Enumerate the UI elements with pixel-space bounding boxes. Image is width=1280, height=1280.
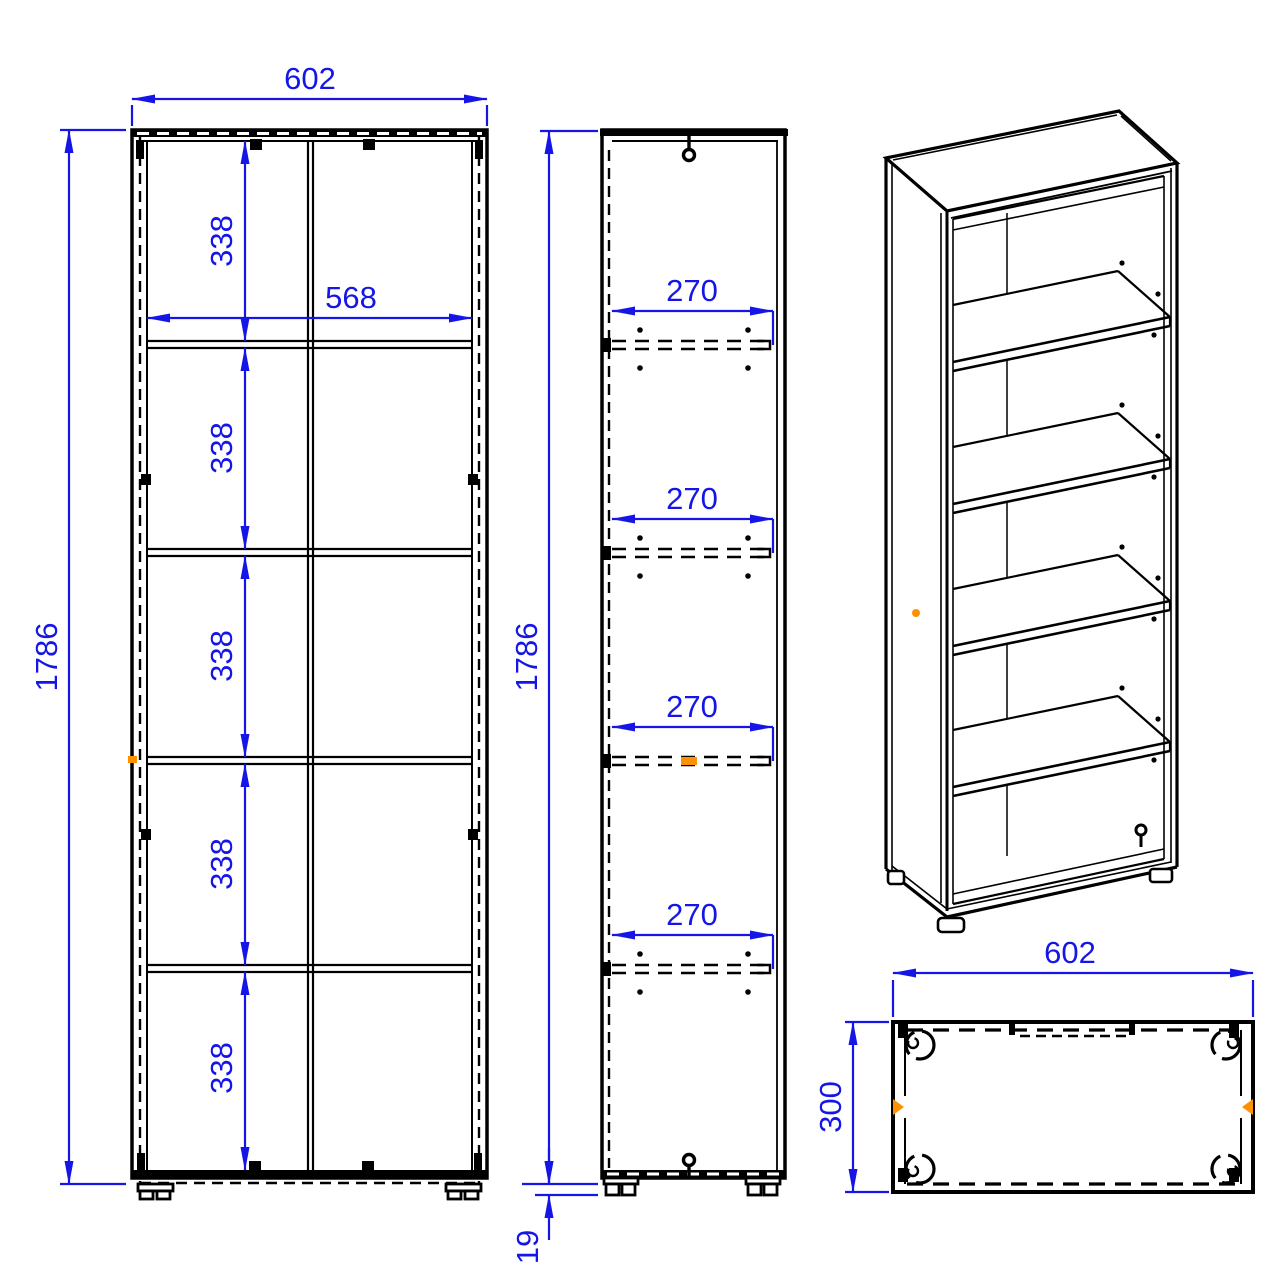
dim-front-spacing-4: 338	[204, 838, 239, 890]
iso-shelf-4	[953, 685, 1170, 796]
side-shelf-1	[603, 327, 770, 371]
side-shelf-3-fixed	[603, 754, 770, 768]
dim-top-width: 602	[1044, 935, 1096, 970]
top-cam-marker-right	[1242, 1099, 1253, 1115]
technical-drawing-svg: 602 568 1786 338 338 338 338 338	[0, 0, 1280, 1280]
front-dimension-labels: 602 568 1786 338 338 338 338 338	[29, 61, 377, 1094]
front-shelves	[147, 341, 472, 972]
front-cam-marker	[128, 756, 137, 763]
dim-side-depth-2: 270	[666, 481, 718, 516]
front-outer-outline	[132, 130, 487, 1178]
side-shelf-4	[603, 951, 770, 995]
top-fitting-blocks	[898, 1023, 1239, 1182]
side-dimensions	[522, 131, 773, 1240]
dim-top-depth: 300	[813, 1081, 848, 1133]
front-hinge-blocks	[136, 139, 483, 1177]
side-top-panel-band	[600, 129, 788, 136]
drawing-canvas: 602 568 1786 338 338 338 338 338	[0, 0, 1280, 1280]
dim-side-height: 1786	[509, 623, 544, 692]
fixed-shelf-cam-marker	[681, 757, 697, 765]
dim-front-spacing-3: 338	[204, 630, 239, 682]
side-shelf-2	[603, 535, 770, 579]
iso-shelf-2	[953, 402, 1170, 513]
dim-front-width: 602	[284, 61, 336, 96]
dim-front-inner-width: 568	[325, 280, 377, 315]
dim-side-plinth: 19	[510, 1230, 545, 1264]
side-dimension-labels: 1786 270 270 270 270 19	[509, 273, 718, 1264]
top-feet	[906, 1031, 1240, 1183]
front-feet	[138, 1184, 481, 1199]
iso-keyhole-fitting	[1136, 825, 1146, 847]
iso-cam-marker	[912, 609, 920, 617]
dim-side-depth-4: 270	[666, 897, 718, 932]
iso-shelf-3	[953, 544, 1170, 655]
dim-side-depth-1: 270	[666, 273, 718, 308]
dim-side-depth-3: 270	[666, 689, 718, 724]
front-bottom-panel-band	[132, 1170, 487, 1178]
front-view	[128, 130, 487, 1199]
front-dimensions	[60, 99, 487, 1184]
top-view	[893, 1022, 1253, 1192]
top-dimensions	[845, 973, 1253, 1192]
top-outer-outline	[893, 1022, 1253, 1192]
dim-front-spacing-5: 338	[204, 1042, 239, 1094]
side-feet	[604, 1178, 780, 1195]
iso-shelf-1	[953, 260, 1170, 371]
dim-front-height: 1786	[29, 623, 64, 692]
isometric-view	[886, 111, 1177, 932]
dim-front-spacing-1: 338	[204, 215, 239, 267]
dim-front-spacing-2: 338	[204, 422, 239, 474]
top-cam-marker-left	[893, 1099, 904, 1115]
top-dimension-labels: 602 300	[813, 935, 1096, 1133]
